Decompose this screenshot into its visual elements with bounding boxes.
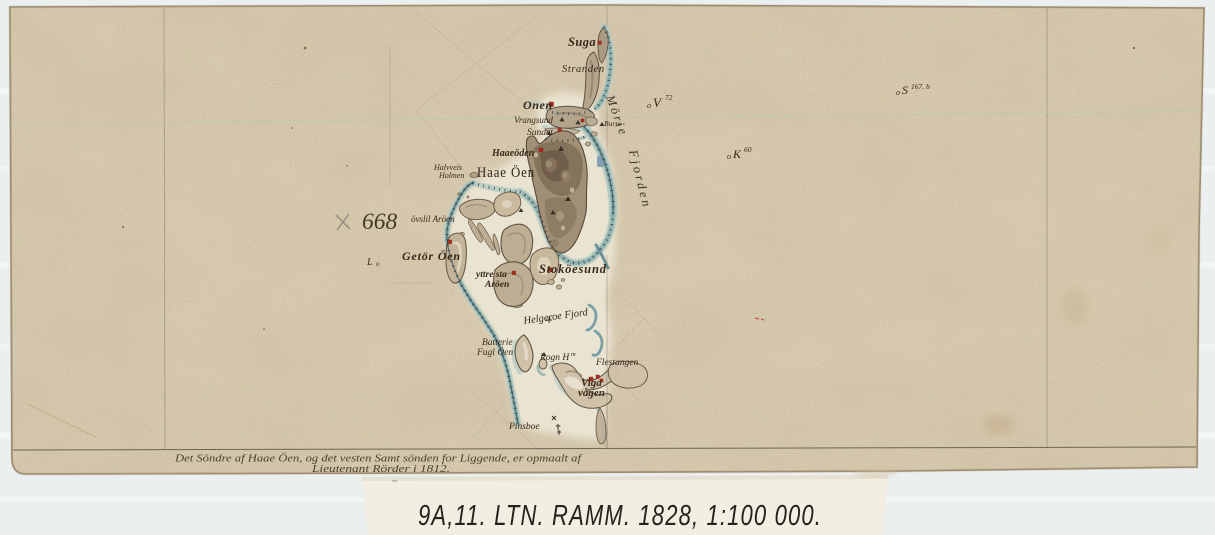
svg-text:Stoköesund: Stoköesund	[539, 262, 607, 276]
svg-text:Haae Öen: Haae Öen	[477, 164, 535, 181]
svg-text:Onen: Onen	[523, 98, 553, 112]
svg-text:Lieutenant Rörder i 1812.: Lieutenant Rörder i 1812.	[311, 464, 450, 475]
svg-text:60: 60	[744, 145, 752, 154]
svg-text:o: o	[376, 260, 380, 268]
svg-text:Suga: Suga	[568, 35, 596, 49]
svg-text:m: m	[571, 351, 576, 358]
svg-text:Fugl Öen: Fugl Öen	[476, 346, 513, 358]
svg-text:Stranden: Stranden	[562, 64, 605, 75]
svg-text:Haaeöden: Haaeöden	[491, 148, 535, 159]
svg-text:Getör Öen: Getör Öen	[402, 249, 461, 263]
svg-text:Sundet: Sundet	[527, 128, 553, 138]
svg-text:o: o	[896, 88, 900, 97]
svg-text:Aröen: Aröen	[484, 280, 509, 290]
svg-text:Rogn H: Rogn H	[539, 353, 570, 363]
svg-text:167. b: 167. b	[911, 82, 930, 91]
svg-text:Pinsboe: Pinsboe	[508, 422, 540, 432]
svg-text:yttre sta: yttre sta	[475, 270, 507, 280]
svg-text:668: 668	[362, 209, 398, 235]
svg-text:9A,11. LTN. RAMM. 1828, 1:100: 9A,11. LTN. RAMM. 1828, 1:100 000.	[418, 500, 822, 532]
svg-text:Holmen: Holmen	[438, 171, 464, 180]
svg-text:vågen: vågen	[578, 387, 605, 399]
svg-text:72: 72	[665, 93, 673, 102]
svg-text:Batterie: Batterie	[482, 338, 513, 348]
svg-text:Det Söndre af Haae Öen, og det: Det Söndre af Haae Öen, og det vesten Sa…	[174, 453, 584, 465]
svg-text:o: o	[727, 152, 731, 161]
svg-text:Flestangen: Flestangen	[595, 358, 638, 368]
svg-text:Vrangsund: Vrangsund	[514, 115, 553, 125]
svg-text:o: o	[647, 101, 651, 110]
svg-text:K: K	[732, 147, 742, 161]
svg-text:S: S	[902, 83, 908, 97]
svg-text:övslil Aröen: övslil Aröen	[411, 214, 455, 224]
svg-text:L: L	[366, 257, 373, 268]
